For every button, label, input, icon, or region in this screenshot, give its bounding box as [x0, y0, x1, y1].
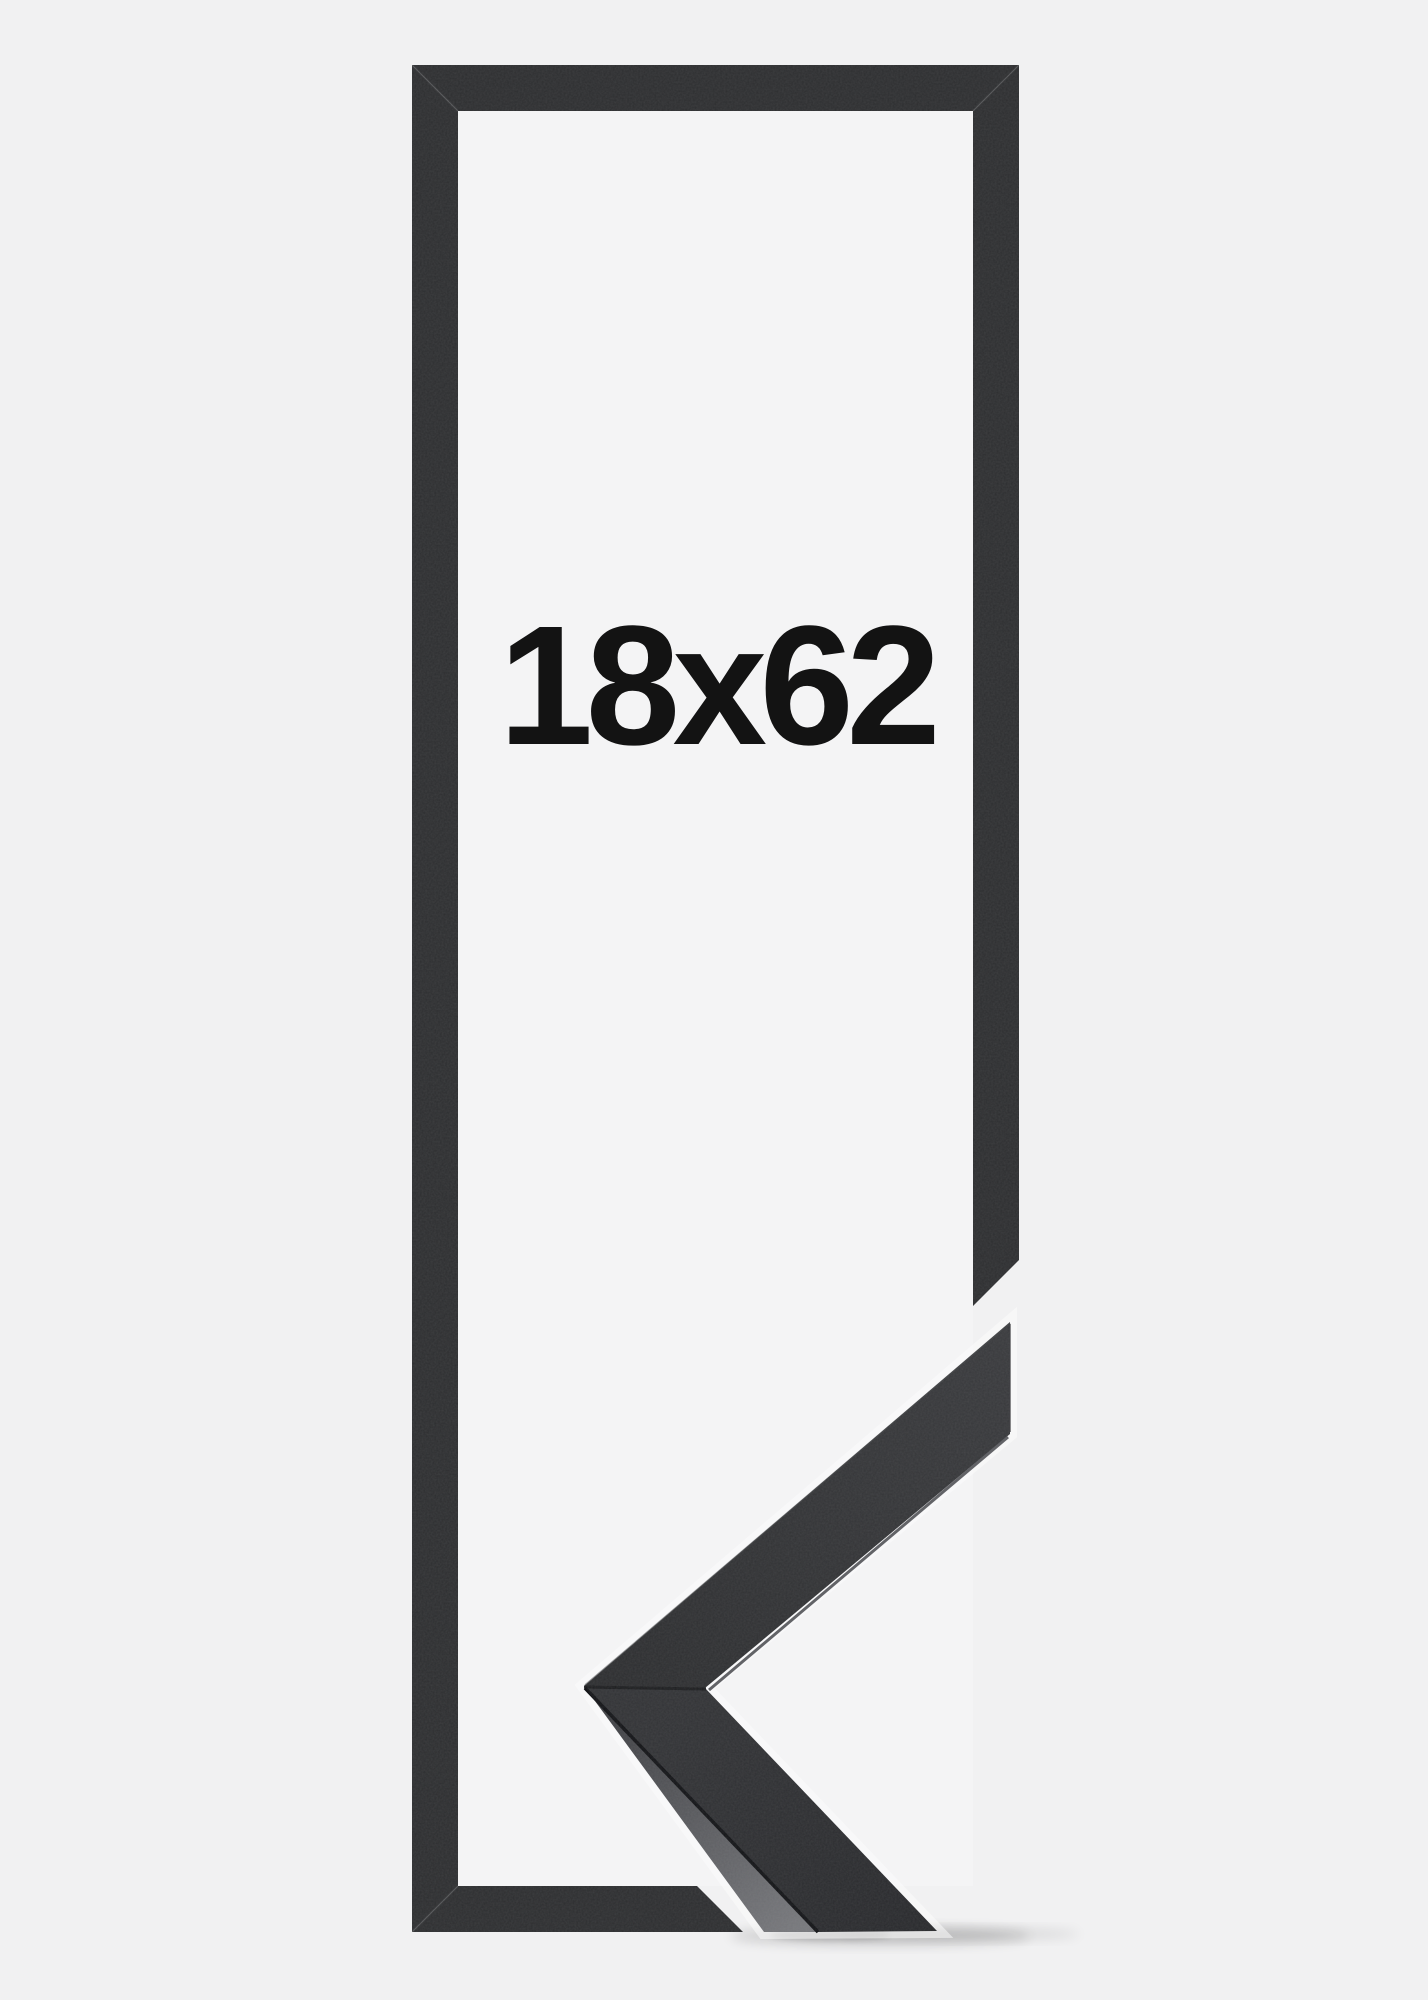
frame-illustration-canvas: [0, 0, 1428, 2000]
frame-size-product-illustration: 18x62: [0, 0, 1428, 2000]
frame-size-label: 18x62: [443, 566, 989, 806]
